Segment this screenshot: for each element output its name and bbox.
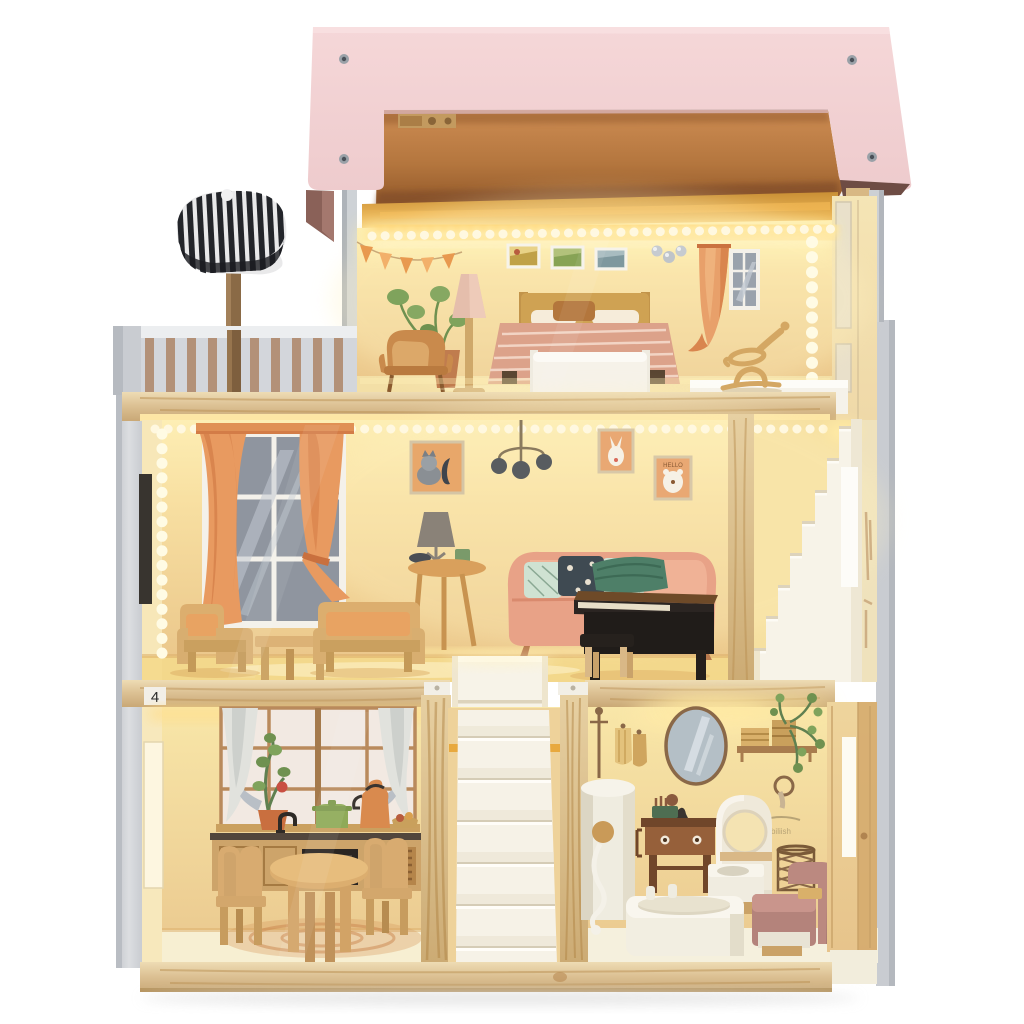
svg-text:4: 4	[151, 689, 159, 706]
svg-text:HELLO: HELLO	[663, 463, 683, 469]
svg-text:biliish: biliish	[771, 827, 791, 836]
